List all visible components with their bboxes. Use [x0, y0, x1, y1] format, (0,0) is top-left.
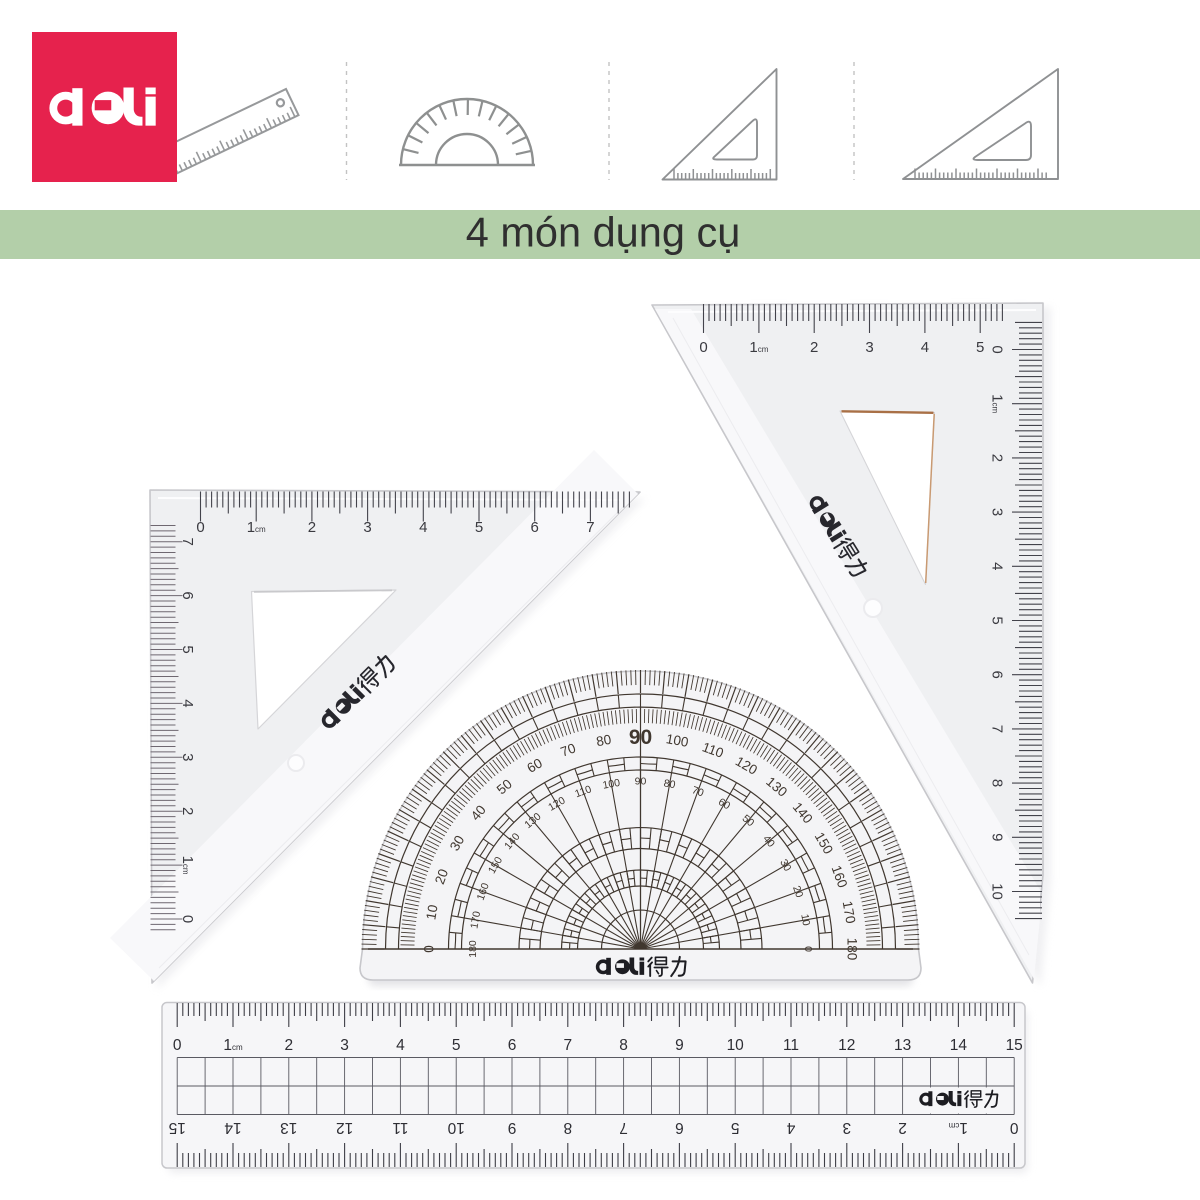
svg-text:12: 12: [838, 1037, 855, 1054]
svg-text:10: 10: [798, 913, 812, 927]
svg-text:3: 3: [842, 1119, 851, 1136]
svg-text:4: 4: [419, 519, 427, 536]
svg-text:7: 7: [619, 1119, 628, 1136]
svg-text:0: 0: [421, 945, 436, 953]
svg-text:80: 80: [595, 732, 612, 749]
svg-text:5: 5: [475, 519, 483, 536]
svg-text:2: 2: [284, 1037, 293, 1054]
svg-text:2: 2: [308, 519, 316, 536]
svg-text:8: 8: [989, 779, 1006, 787]
svg-text:180: 180: [845, 938, 860, 961]
svg-text:5: 5: [976, 339, 984, 356]
svg-text:7: 7: [989, 725, 1006, 733]
svg-text:10: 10: [989, 883, 1006, 900]
svg-text:5: 5: [179, 645, 196, 653]
svg-text:13: 13: [280, 1119, 297, 1136]
svg-text:6: 6: [675, 1119, 684, 1136]
svg-text:10: 10: [423, 904, 440, 921]
svg-text:2: 2: [989, 454, 1006, 462]
svg-text:0: 0: [173, 1037, 182, 1054]
svg-text:9: 9: [989, 833, 1006, 841]
svg-text:7: 7: [563, 1037, 572, 1054]
svg-text:80: 80: [663, 777, 677, 791]
svg-text:0: 0: [989, 345, 1006, 353]
svg-text:3: 3: [340, 1037, 349, 1054]
svg-text:3: 3: [989, 508, 1006, 516]
svg-text:6: 6: [179, 591, 196, 599]
svg-text:10: 10: [447, 1119, 465, 1136]
svg-text:3: 3: [865, 339, 873, 356]
svg-text:180: 180: [467, 940, 479, 958]
svg-text:11: 11: [783, 1037, 799, 1054]
svg-text:4 món dụng cụ: 4 món dụng cụ: [466, 209, 741, 256]
svg-text:5: 5: [731, 1119, 740, 1136]
svg-text:0: 0: [802, 946, 814, 952]
svg-text:5: 5: [989, 616, 1006, 624]
svg-text:8: 8: [563, 1119, 572, 1136]
svg-text:6: 6: [508, 1037, 517, 1054]
svg-text:14: 14: [950, 1037, 968, 1054]
svg-text:8: 8: [619, 1037, 628, 1054]
svg-text:2: 2: [810, 339, 818, 356]
svg-text:3: 3: [179, 753, 196, 761]
svg-text:15: 15: [1006, 1037, 1023, 1054]
svg-text:4: 4: [786, 1119, 795, 1136]
svg-text:4: 4: [396, 1037, 405, 1054]
svg-text:0: 0: [699, 339, 707, 356]
svg-text:7: 7: [586, 519, 594, 536]
svg-text:6: 6: [531, 519, 539, 536]
svg-text:13: 13: [894, 1037, 911, 1054]
svg-text:90: 90: [635, 776, 647, 788]
svg-text:14: 14: [224, 1119, 242, 1136]
svg-text:0: 0: [196, 519, 204, 536]
svg-text:3: 3: [363, 519, 371, 536]
svg-text:9: 9: [675, 1037, 684, 1054]
svg-text:12: 12: [336, 1119, 353, 1136]
svg-text:15: 15: [169, 1119, 186, 1136]
svg-text:6: 6: [989, 671, 1006, 679]
svg-text:90: 90: [629, 726, 652, 749]
svg-text:9: 9: [508, 1119, 517, 1136]
svg-text:0: 0: [179, 915, 196, 923]
svg-text:11: 11: [392, 1119, 408, 1136]
svg-text:0: 0: [1010, 1119, 1019, 1136]
svg-text:2: 2: [898, 1119, 907, 1136]
svg-text:4: 4: [179, 699, 196, 707]
svg-text:4: 4: [989, 562, 1006, 570]
svg-text:7: 7: [179, 538, 196, 546]
svg-text:10: 10: [727, 1037, 745, 1054]
svg-text:4: 4: [921, 339, 929, 356]
svg-text:2: 2: [179, 807, 196, 815]
svg-text:5: 5: [452, 1037, 461, 1054]
